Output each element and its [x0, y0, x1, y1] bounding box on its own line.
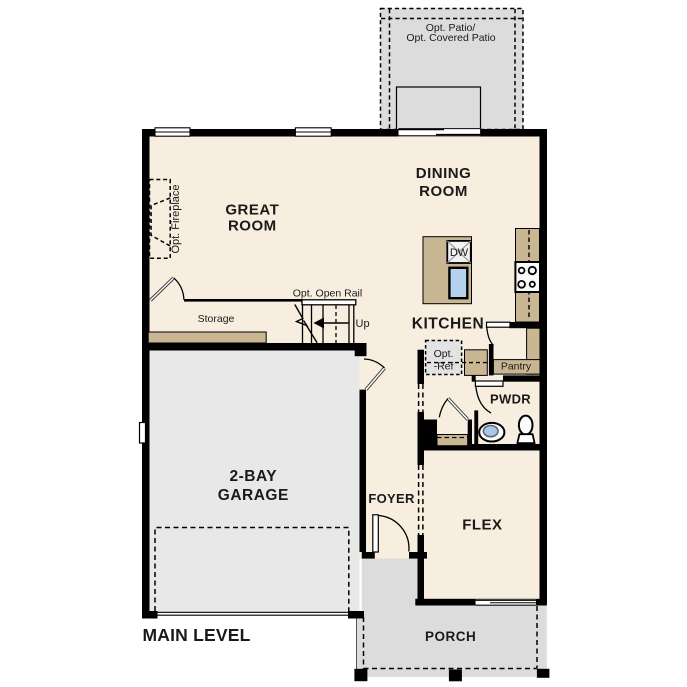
svg-text:PWDR: PWDR [490, 392, 531, 407]
svg-text:Up: Up [356, 318, 370, 330]
svg-text:Opt. Covered Patio: Opt. Covered Patio [406, 32, 495, 44]
svg-text:DW: DW [450, 247, 469, 259]
svg-text:Opt. Fireplace: Opt. Fireplace [170, 184, 182, 253]
svg-text:ROOM: ROOM [228, 218, 277, 235]
svg-text:PORCH: PORCH [425, 629, 476, 644]
svg-text:Storage: Storage [198, 313, 235, 325]
svg-text:MAIN LEVEL: MAIN LEVEL [143, 625, 251, 645]
svg-text:2-BAY: 2-BAY [230, 468, 278, 485]
svg-text:-Ref: -Ref [434, 361, 454, 373]
svg-text:KITCHEN: KITCHEN [412, 316, 484, 333]
svg-text:GREAT: GREAT [225, 202, 279, 219]
svg-text:DINING: DINING [416, 165, 472, 182]
svg-text:Opt.: Opt. [434, 348, 454, 360]
svg-text:FLEX: FLEX [462, 517, 502, 534]
svg-text:Opt. Open Rail: Opt. Open Rail [293, 288, 362, 300]
svg-text:FOYER: FOYER [368, 491, 415, 506]
svg-text:GARAGE: GARAGE [218, 487, 289, 504]
svg-text:Pantry: Pantry [501, 361, 532, 373]
svg-text:ROOM: ROOM [419, 183, 468, 200]
